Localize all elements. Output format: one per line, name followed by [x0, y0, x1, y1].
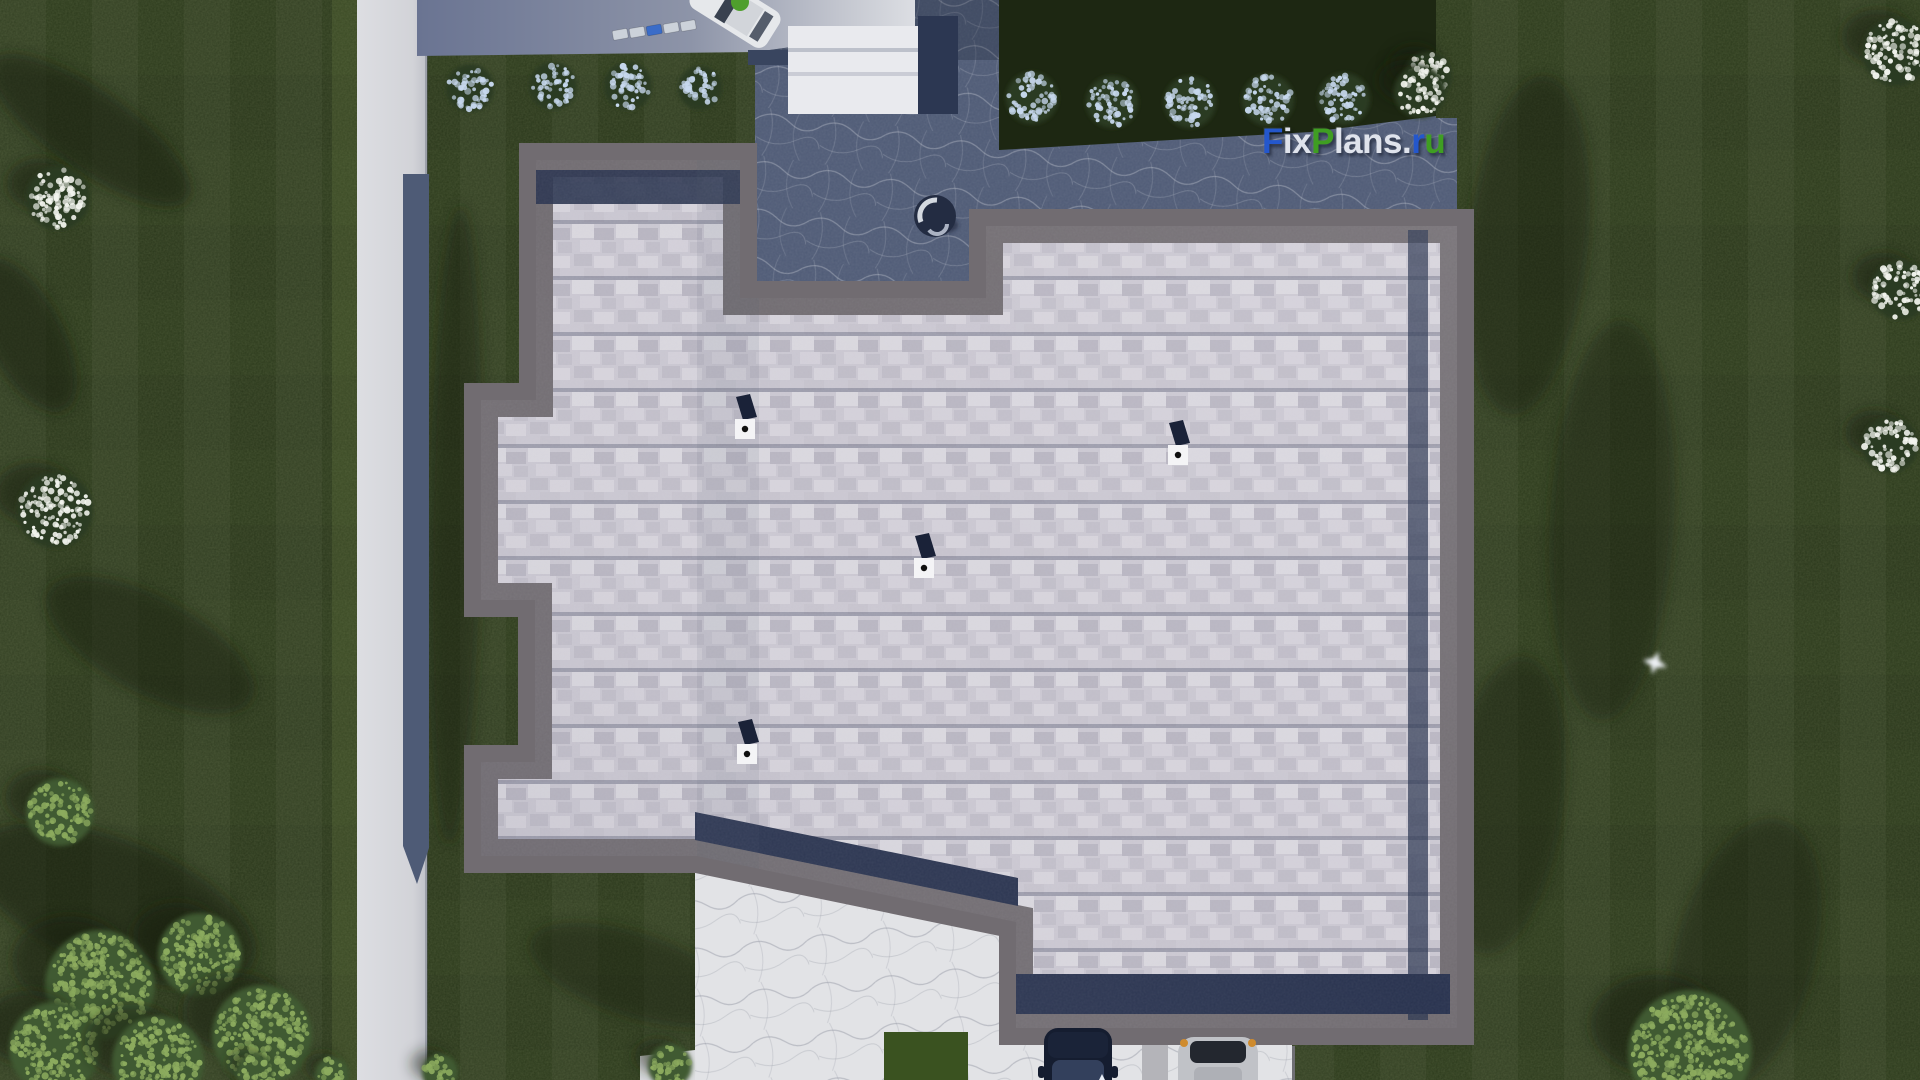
watermark-segment: ix	[1283, 122, 1311, 162]
site-plan-canvas	[0, 0, 1920, 1080]
boundary-wall-strip	[403, 174, 429, 884]
watermark-segment: F	[1262, 122, 1283, 162]
lawn-strip-between	[884, 1032, 968, 1080]
watermark-segment: .	[1402, 122, 1411, 162]
aerial-site-plan-render: FixPlans.ru	[0, 0, 1920, 1080]
headlight	[1180, 1039, 1188, 1047]
lawn-lit-strip	[332, 0, 357, 1080]
pole	[1292, 1046, 1295, 1080]
headlight	[1248, 1039, 1256, 1047]
watermark-segment: P	[1311, 122, 1334, 162]
fixplans-watermark: FixPlans.ru	[1262, 122, 1445, 162]
dark-car	[1038, 1028, 1118, 1080]
porch-slab	[788, 26, 920, 114]
silver-car	[1178, 1037, 1258, 1080]
porch-shadow	[918, 16, 958, 114]
watermark-segment: u	[1424, 122, 1445, 162]
watermark-segment: r	[1411, 122, 1424, 162]
watermark-segment: lans	[1334, 122, 1402, 162]
step-shadow	[748, 50, 790, 65]
